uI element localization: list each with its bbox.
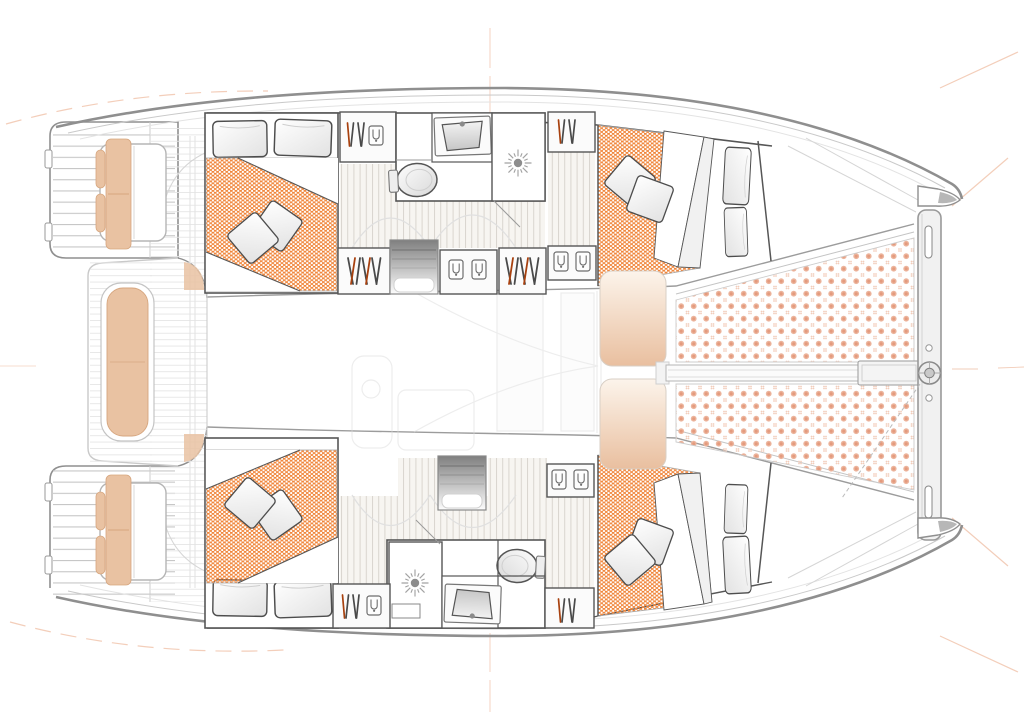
pillow xyxy=(723,147,752,205)
port-wardrobe-mid xyxy=(548,112,595,152)
catamaran-floor-plan xyxy=(0,0,1024,724)
port-aft-cabin xyxy=(205,113,338,293)
beam-slot xyxy=(925,226,932,258)
port-corridor-floor-1 xyxy=(340,164,396,248)
port-companionway-stairs xyxy=(390,240,438,294)
trampoline-starboard xyxy=(676,384,914,490)
bowsprit-fitting xyxy=(918,362,941,384)
mark-top-right-1 xyxy=(940,52,1018,88)
pillow xyxy=(274,580,332,618)
port-forward-cabin xyxy=(598,125,771,286)
beam-hole xyxy=(926,345,932,351)
cubby-icon xyxy=(574,470,588,489)
helm-seat-starboard xyxy=(96,475,166,585)
stbd-wardrobe-aft xyxy=(333,584,390,628)
beam-slot xyxy=(925,486,932,518)
stbd-corridor-floor-3 xyxy=(545,496,594,588)
beam-hole xyxy=(926,395,932,401)
sunpad-port xyxy=(600,271,666,366)
bow-tip-starboard xyxy=(918,518,960,538)
saloon-ghost xyxy=(352,291,601,450)
starboard-aft-cabin xyxy=(205,438,338,628)
starboard-companionway-stairs xyxy=(438,456,486,510)
pillow xyxy=(213,580,268,617)
sunpad-starboard xyxy=(600,379,666,469)
cubby-icon xyxy=(449,260,463,279)
cockpit-bench xyxy=(101,283,154,441)
cubby-icon xyxy=(554,252,568,271)
pillow xyxy=(723,536,752,594)
starboard-forward-cabin xyxy=(598,455,771,616)
cockpit xyxy=(90,124,207,602)
shower-bench xyxy=(392,604,420,618)
pillow xyxy=(274,119,332,157)
cubby-icon xyxy=(369,126,383,145)
cubby-icon xyxy=(367,596,381,615)
port-wardrobe-aft xyxy=(340,112,396,162)
port-cabinet-row xyxy=(338,240,596,294)
washbasin xyxy=(444,584,501,624)
stbd-corridor-floor-5 xyxy=(398,458,438,496)
mark-bottom-right-1 xyxy=(952,518,1008,566)
mark-top-right-2 xyxy=(952,158,1008,206)
mark-bottom-right-2 xyxy=(940,636,1018,672)
cubby-icon xyxy=(472,260,486,279)
boat-plan-canvas xyxy=(0,0,1024,724)
helm-seat-port xyxy=(96,139,166,249)
shower-drain-icon xyxy=(505,150,532,177)
shower-drain-icon xyxy=(402,570,429,597)
pillow xyxy=(213,121,268,158)
trampoline-port xyxy=(676,238,914,362)
stbd-corridor-floor-4 xyxy=(488,458,547,496)
centerline-mark-right2 xyxy=(998,367,1024,368)
pillow xyxy=(724,207,748,256)
stbd-storage-cabinet xyxy=(547,464,594,497)
cubby-icon xyxy=(576,252,590,271)
starboard-hull xyxy=(205,438,772,628)
washbasin xyxy=(434,116,491,156)
port-hull xyxy=(205,112,772,294)
pillow xyxy=(724,484,748,533)
cubby-icon xyxy=(552,470,566,489)
stbd-wardrobe-mid xyxy=(545,588,594,628)
bow-tip-port xyxy=(918,186,960,206)
port-corridor-floor-3 xyxy=(548,152,595,248)
